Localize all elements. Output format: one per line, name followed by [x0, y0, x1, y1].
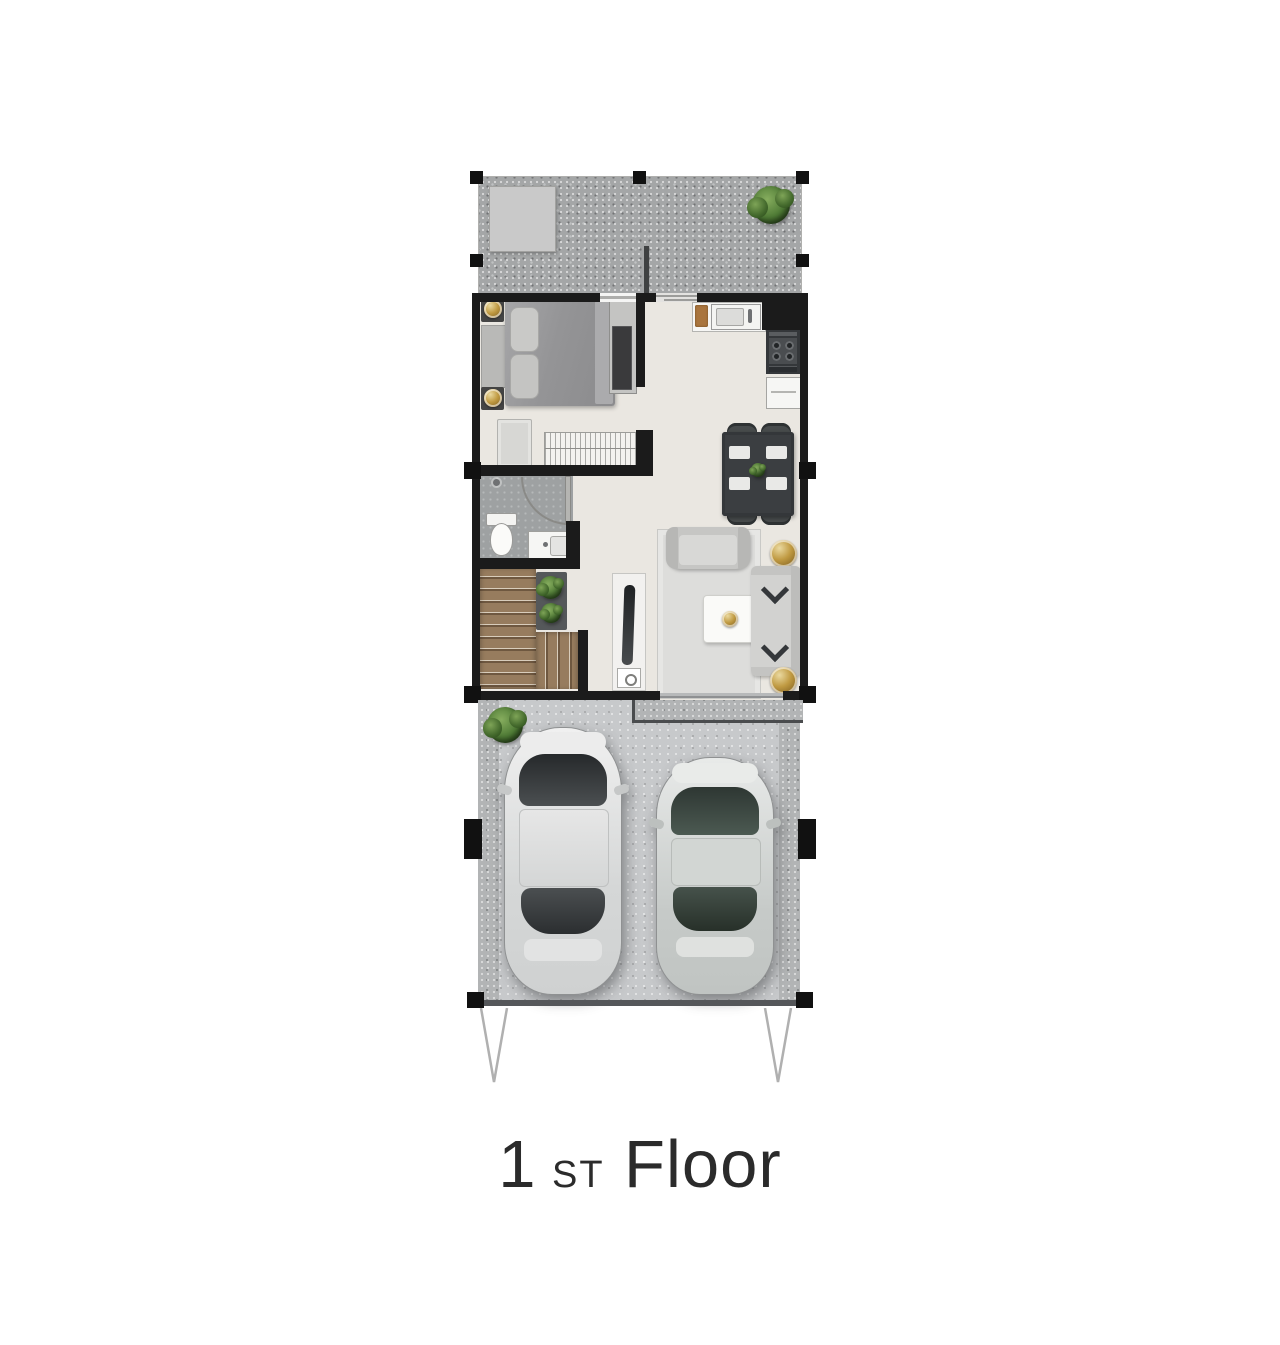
entry-sliding-door	[660, 693, 783, 698]
column-marker	[470, 254, 483, 267]
stove-controls	[769, 332, 797, 336]
sofa-pillow-chevron	[761, 634, 789, 662]
wall-bedroom-bathroom	[472, 465, 653, 476]
media-box-dial	[625, 674, 637, 686]
car-sedan-white	[504, 727, 622, 995]
terrace-pad	[489, 186, 556, 252]
pillow	[510, 354, 539, 399]
bathroom-door-leaf	[565, 476, 571, 525]
carport-column	[798, 819, 816, 859]
cabinet-handle	[771, 391, 796, 393]
boundary-stake-icon	[761, 1008, 795, 1086]
car-trunk	[524, 939, 602, 961]
car-windshield	[671, 787, 759, 835]
car-roof	[519, 809, 609, 887]
sofa-pillow-chevron	[761, 576, 789, 604]
kitchen-cabinet	[766, 377, 802, 409]
shelf-plant	[539, 576, 562, 599]
sofa	[751, 566, 801, 676]
bed	[505, 299, 615, 406]
sink-basin	[716, 308, 744, 326]
armchair-arm	[738, 527, 750, 569]
wall-bathroom-bottom	[472, 558, 580, 569]
burner	[785, 352, 794, 361]
staircase-upper-flight	[480, 567, 536, 689]
cutting-board	[695, 305, 708, 327]
placemat	[766, 446, 787, 459]
plant-shelf	[536, 572, 567, 630]
wall-left	[472, 293, 480, 700]
floor-number: 1	[498, 1127, 536, 1202]
sofa-armrest	[751, 566, 791, 575]
car-hood	[672, 763, 758, 783]
wall-bedroom-right	[636, 293, 645, 387]
car-hood	[520, 732, 606, 752]
column-marker	[796, 171, 809, 184]
burner	[772, 341, 781, 350]
bedside-lamp	[484, 300, 502, 318]
terrace-plant	[752, 186, 790, 224]
toilet	[486, 513, 515, 555]
armchair-arm	[666, 527, 678, 569]
column-marker	[470, 171, 483, 184]
terrace-divider-wall	[644, 246, 649, 293]
car-windshield	[519, 754, 607, 806]
column-marker	[796, 254, 809, 267]
floor-word: Floor	[624, 1127, 782, 1202]
floor-ordinal-suffix: st	[552, 1154, 605, 1196]
media-box	[617, 668, 641, 688]
wall-right	[800, 293, 808, 700]
gold-pouf	[770, 667, 797, 694]
ceiling-light	[493, 479, 500, 486]
carport-border-right	[779, 700, 800, 1005]
closet-rail-bar	[545, 448, 637, 449]
closet-rail	[544, 432, 638, 467]
entry-walkway	[632, 700, 803, 723]
placemat	[766, 477, 787, 490]
table-decor	[722, 611, 738, 627]
wall-bottom-left	[472, 691, 660, 700]
cooktop	[769, 338, 797, 364]
wall-top-bedroom	[472, 293, 600, 302]
table-centerpiece-plant	[751, 463, 765, 477]
car-rear-window	[673, 887, 757, 931]
toilet-bowl	[490, 523, 513, 556]
car-rear-window	[521, 888, 605, 934]
dining-table	[722, 432, 794, 516]
slider-panel-line	[656, 295, 697, 297]
floor-title: 1 st Floor	[0, 1126, 1280, 1203]
bedroom-window	[600, 293, 640, 302]
kitchen-sink	[711, 304, 761, 330]
armchair-cushion	[679, 535, 737, 565]
column-marker	[796, 992, 813, 1008]
wall-kitchen-corner-block	[762, 293, 808, 330]
car-trunk	[676, 937, 754, 957]
car-roof	[671, 838, 761, 886]
tv	[622, 585, 636, 665]
sink-faucet	[748, 309, 752, 323]
bedside-lamp	[484, 389, 502, 407]
staircase-lower-flight	[536, 632, 578, 691]
placemat	[729, 446, 750, 459]
tv-console	[612, 573, 646, 691]
column-marker	[799, 462, 816, 479]
window-glass-line	[600, 296, 640, 299]
wardrobe	[609, 300, 637, 394]
oven-drawer	[769, 366, 797, 372]
burner	[785, 341, 794, 350]
pillow	[510, 307, 539, 352]
bed-headboard	[481, 325, 507, 388]
armchair	[666, 527, 750, 569]
shelf-plant	[541, 603, 561, 623]
coffee-table	[703, 595, 757, 643]
burner	[772, 352, 781, 361]
vanity-faucet	[543, 542, 548, 547]
placemat	[729, 477, 750, 490]
stove-unit	[766, 330, 800, 374]
wall-stair-living	[578, 630, 588, 700]
boundary-stake-icon	[477, 1008, 511, 1086]
wardrobe-door	[612, 326, 632, 390]
slider-panel-line	[664, 299, 697, 301]
gold-pouf	[770, 540, 797, 567]
carport-column	[464, 819, 482, 859]
column-marker	[633, 171, 646, 184]
car-sedan-silver	[656, 757, 774, 995]
floor-plan-canvas: 1 st Floor	[0, 0, 1280, 1345]
column-marker	[467, 992, 484, 1008]
bedroom-seat	[497, 419, 532, 468]
column-marker	[464, 462, 481, 479]
terrace-sliding-door	[656, 293, 697, 302]
carport-bottom-edge	[478, 1000, 800, 1006]
